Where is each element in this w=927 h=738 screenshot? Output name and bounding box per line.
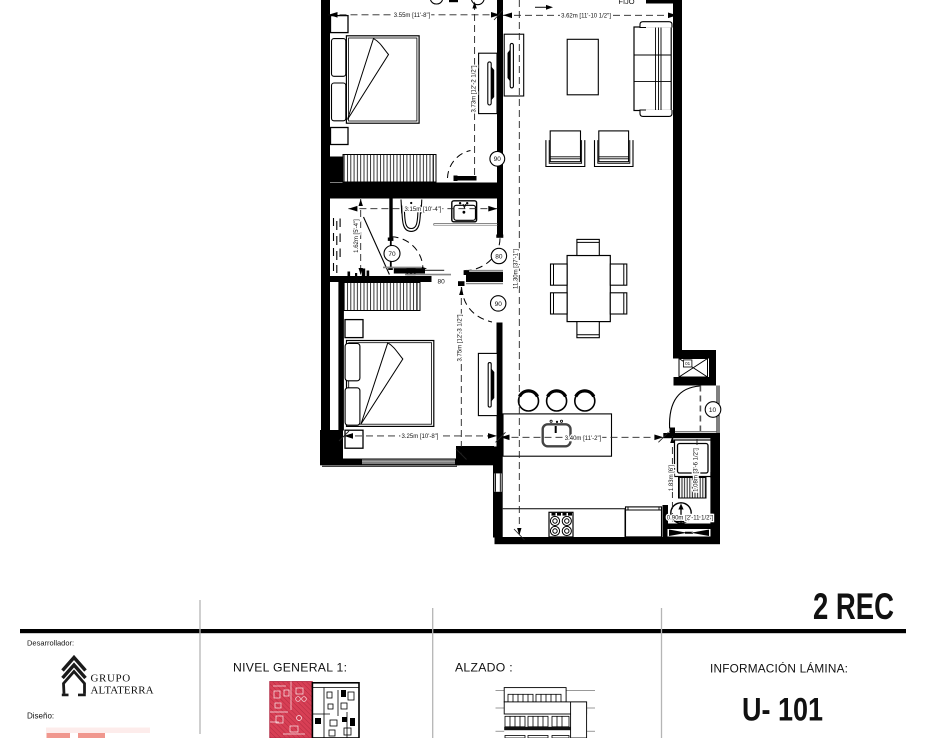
svg-text:3.25m [10'-8"]: 3.25m [10'-8"]: [402, 434, 439, 440]
svg-text:01: 01: [685, 361, 691, 366]
svg-text:10: 10: [709, 407, 717, 414]
svg-text:ALTATERRA: ALTATERRA: [91, 685, 154, 697]
svg-text:2 REC: 2 REC: [813, 586, 894, 627]
svg-text:FIJO: FIJO: [618, 0, 634, 6]
svg-text:Desarrollador:: Desarrollador:: [27, 639, 74, 648]
svg-text:U- 101: U- 101: [742, 692, 823, 728]
svg-text:Diseño:: Diseño:: [27, 712, 54, 721]
svg-text:3.62m [11'-10 1/2"]: 3.62m [11'-10 1/2"]: [561, 14, 611, 20]
svg-text:ALZADO :: ALZADO :: [455, 661, 513, 675]
svg-text:80: 80: [438, 279, 446, 286]
svg-text:1.83m [6']: 1.83m [6']: [669, 465, 675, 491]
svg-text:NIVEL GENERAL 1:: NIVEL GENERAL 1:: [233, 661, 347, 675]
svg-text:3.40m [11'-2"]: 3.40m [11'-2"]: [565, 436, 602, 442]
svg-text:70: 70: [388, 251, 396, 258]
svg-text:INFORMACIÓN LÁMINA:: INFORMACIÓN LÁMINA:: [710, 662, 848, 676]
svg-text:1.62m [5'-4"]: 1.62m [5'-4"]: [354, 219, 360, 253]
svg-text:11.30m [37'-1"]: 11.30m [37'-1"]: [514, 249, 520, 289]
svg-text:1.08m [3'-6 1/2"]: 1.08m [3'-6 1/2"]: [694, 448, 700, 492]
svg-text:90: 90: [494, 156, 502, 163]
svg-text:3.55m [11'-8"]: 3.55m [11'-8"]: [394, 13, 431, 19]
svg-text:3.73m [12'-2 1/2"]: 3.73m [12'-2 1/2"]: [472, 65, 478, 112]
svg-text:GRUPO: GRUPO: [91, 673, 131, 685]
svg-text:3.75m [12'-3 1/2"]: 3.75m [12'-3 1/2"]: [457, 314, 463, 361]
svg-text:0.90m [2'-11 1/2"]: 0.90m [2'-11 1/2"]: [667, 516, 714, 522]
svg-text:80: 80: [495, 253, 503, 260]
svg-text:90: 90: [495, 301, 503, 308]
svg-text:3.15m [10'-4"]: 3.15m [10'-4"]: [405, 207, 442, 213]
